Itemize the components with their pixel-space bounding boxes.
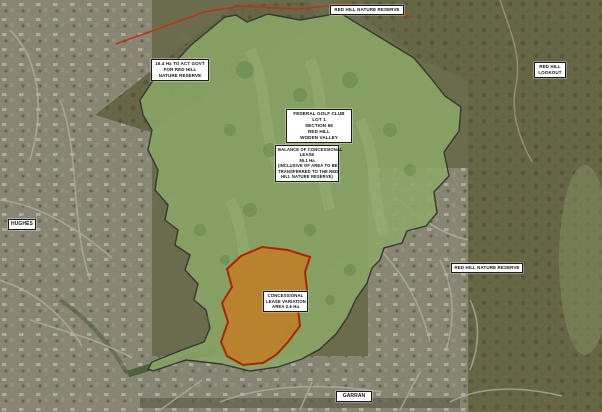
label-line: RED HILL NATURE RESERVE — [333, 7, 401, 13]
label-line: NATURE RESERVE — [154, 73, 206, 79]
label-red-hill-nature-reserve-right: RED HILL NATURE RESERVE — [451, 263, 523, 273]
label-line: WODEN VALLEY — [289, 135, 349, 141]
label-red-hill-nature-reserve-top: RED HILL NATURE RESERVE — [330, 5, 404, 15]
label-garran: GARRAN — [336, 391, 372, 402]
label-line: GARRAN — [339, 393, 369, 400]
label-line: CONCESSIONAL — [266, 293, 305, 299]
label-lease-variation-area: CONCESSIONAL LEASE VARIATION AREA 2.6 Ha — [263, 291, 308, 312]
label-line: HILL NATURE RESERVE) — [278, 174, 336, 179]
map-graphic — [0, 0, 602, 412]
label-line: HUGHES — [11, 221, 33, 228]
label-line: RED HILL — [537, 64, 563, 70]
label-line: LOOKOUT — [537, 70, 563, 76]
label-line: 16.4 Ha TO ACT GOVT — [154, 61, 206, 67]
label-act-govt-transfer: 16.4 Ha TO ACT GOVT FOR RED HILL NATURE … — [151, 59, 209, 81]
label-line: RED HILL NATURE RESERVE — [454, 265, 520, 271]
label-federal-golf-club: FEDERAL GOLF CLUB LOT 1 SECTION 56 RED H… — [286, 109, 352, 143]
label-balance-concessional-lease: BALANCE OF CONCESSIONAL LEASE 55.1 Ha (I… — [275, 145, 339, 182]
label-hughes: HUGHES — [8, 219, 36, 230]
aerial-map: RED HILL NATURE RESERVE 16.4 Ha TO ACT G… — [0, 0, 602, 412]
label-red-hill-lookout: RED HILL LOOKOUT — [534, 62, 566, 78]
grain-overlay — [0, 0, 602, 412]
label-line: AREA 2.6 Ha — [266, 304, 305, 310]
label-line: (INCLUSIVE OF AREA TO BE — [278, 163, 336, 168]
